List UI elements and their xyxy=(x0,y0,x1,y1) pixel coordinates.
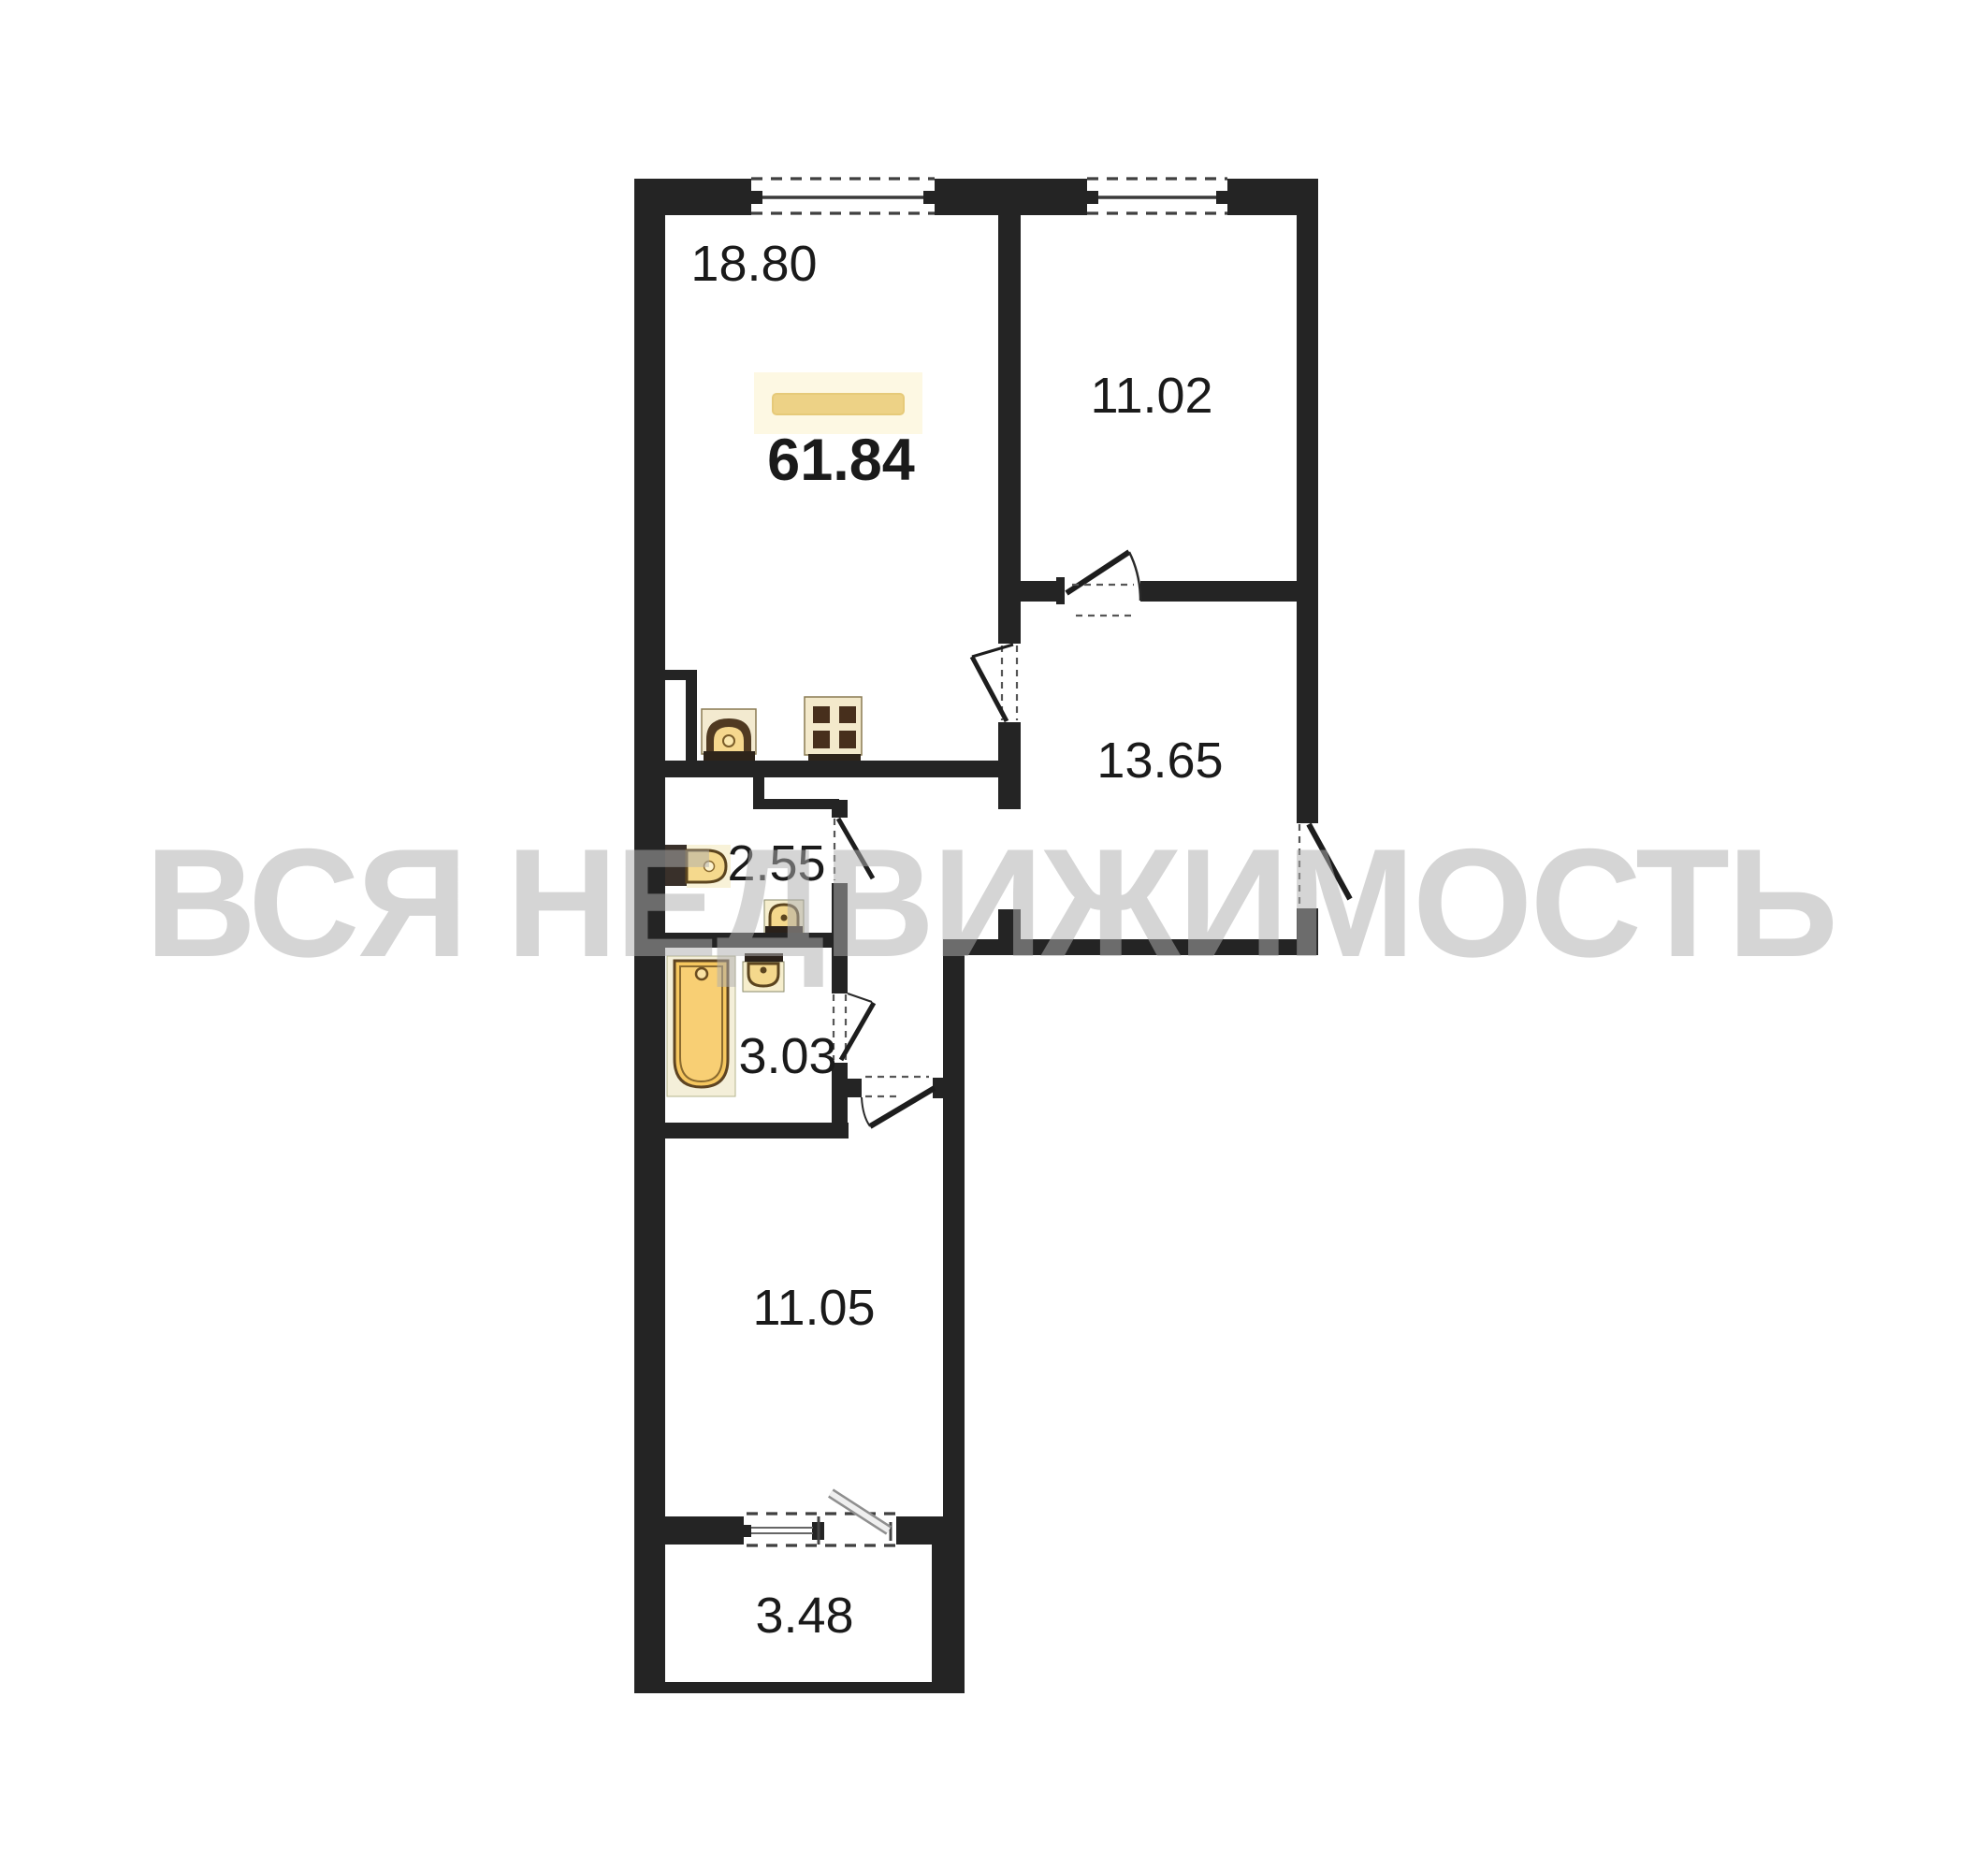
svg-text:11.02: 11.02 xyxy=(1090,368,1212,424)
svg-text:3.03: 3.03 xyxy=(738,1028,836,1084)
svg-text:ВСЯ НЕДВИЖИМОСТЬ: ВСЯ НЕДВИЖИМОСТЬ xyxy=(145,817,1836,989)
svg-text:18.80: 18.80 xyxy=(690,236,817,292)
svg-text:11.05: 11.05 xyxy=(752,1280,875,1336)
svg-text:61.84: 61.84 xyxy=(767,428,915,493)
svg-text:13.65: 13.65 xyxy=(1096,732,1223,789)
svg-text:3.48: 3.48 xyxy=(755,1588,853,1644)
